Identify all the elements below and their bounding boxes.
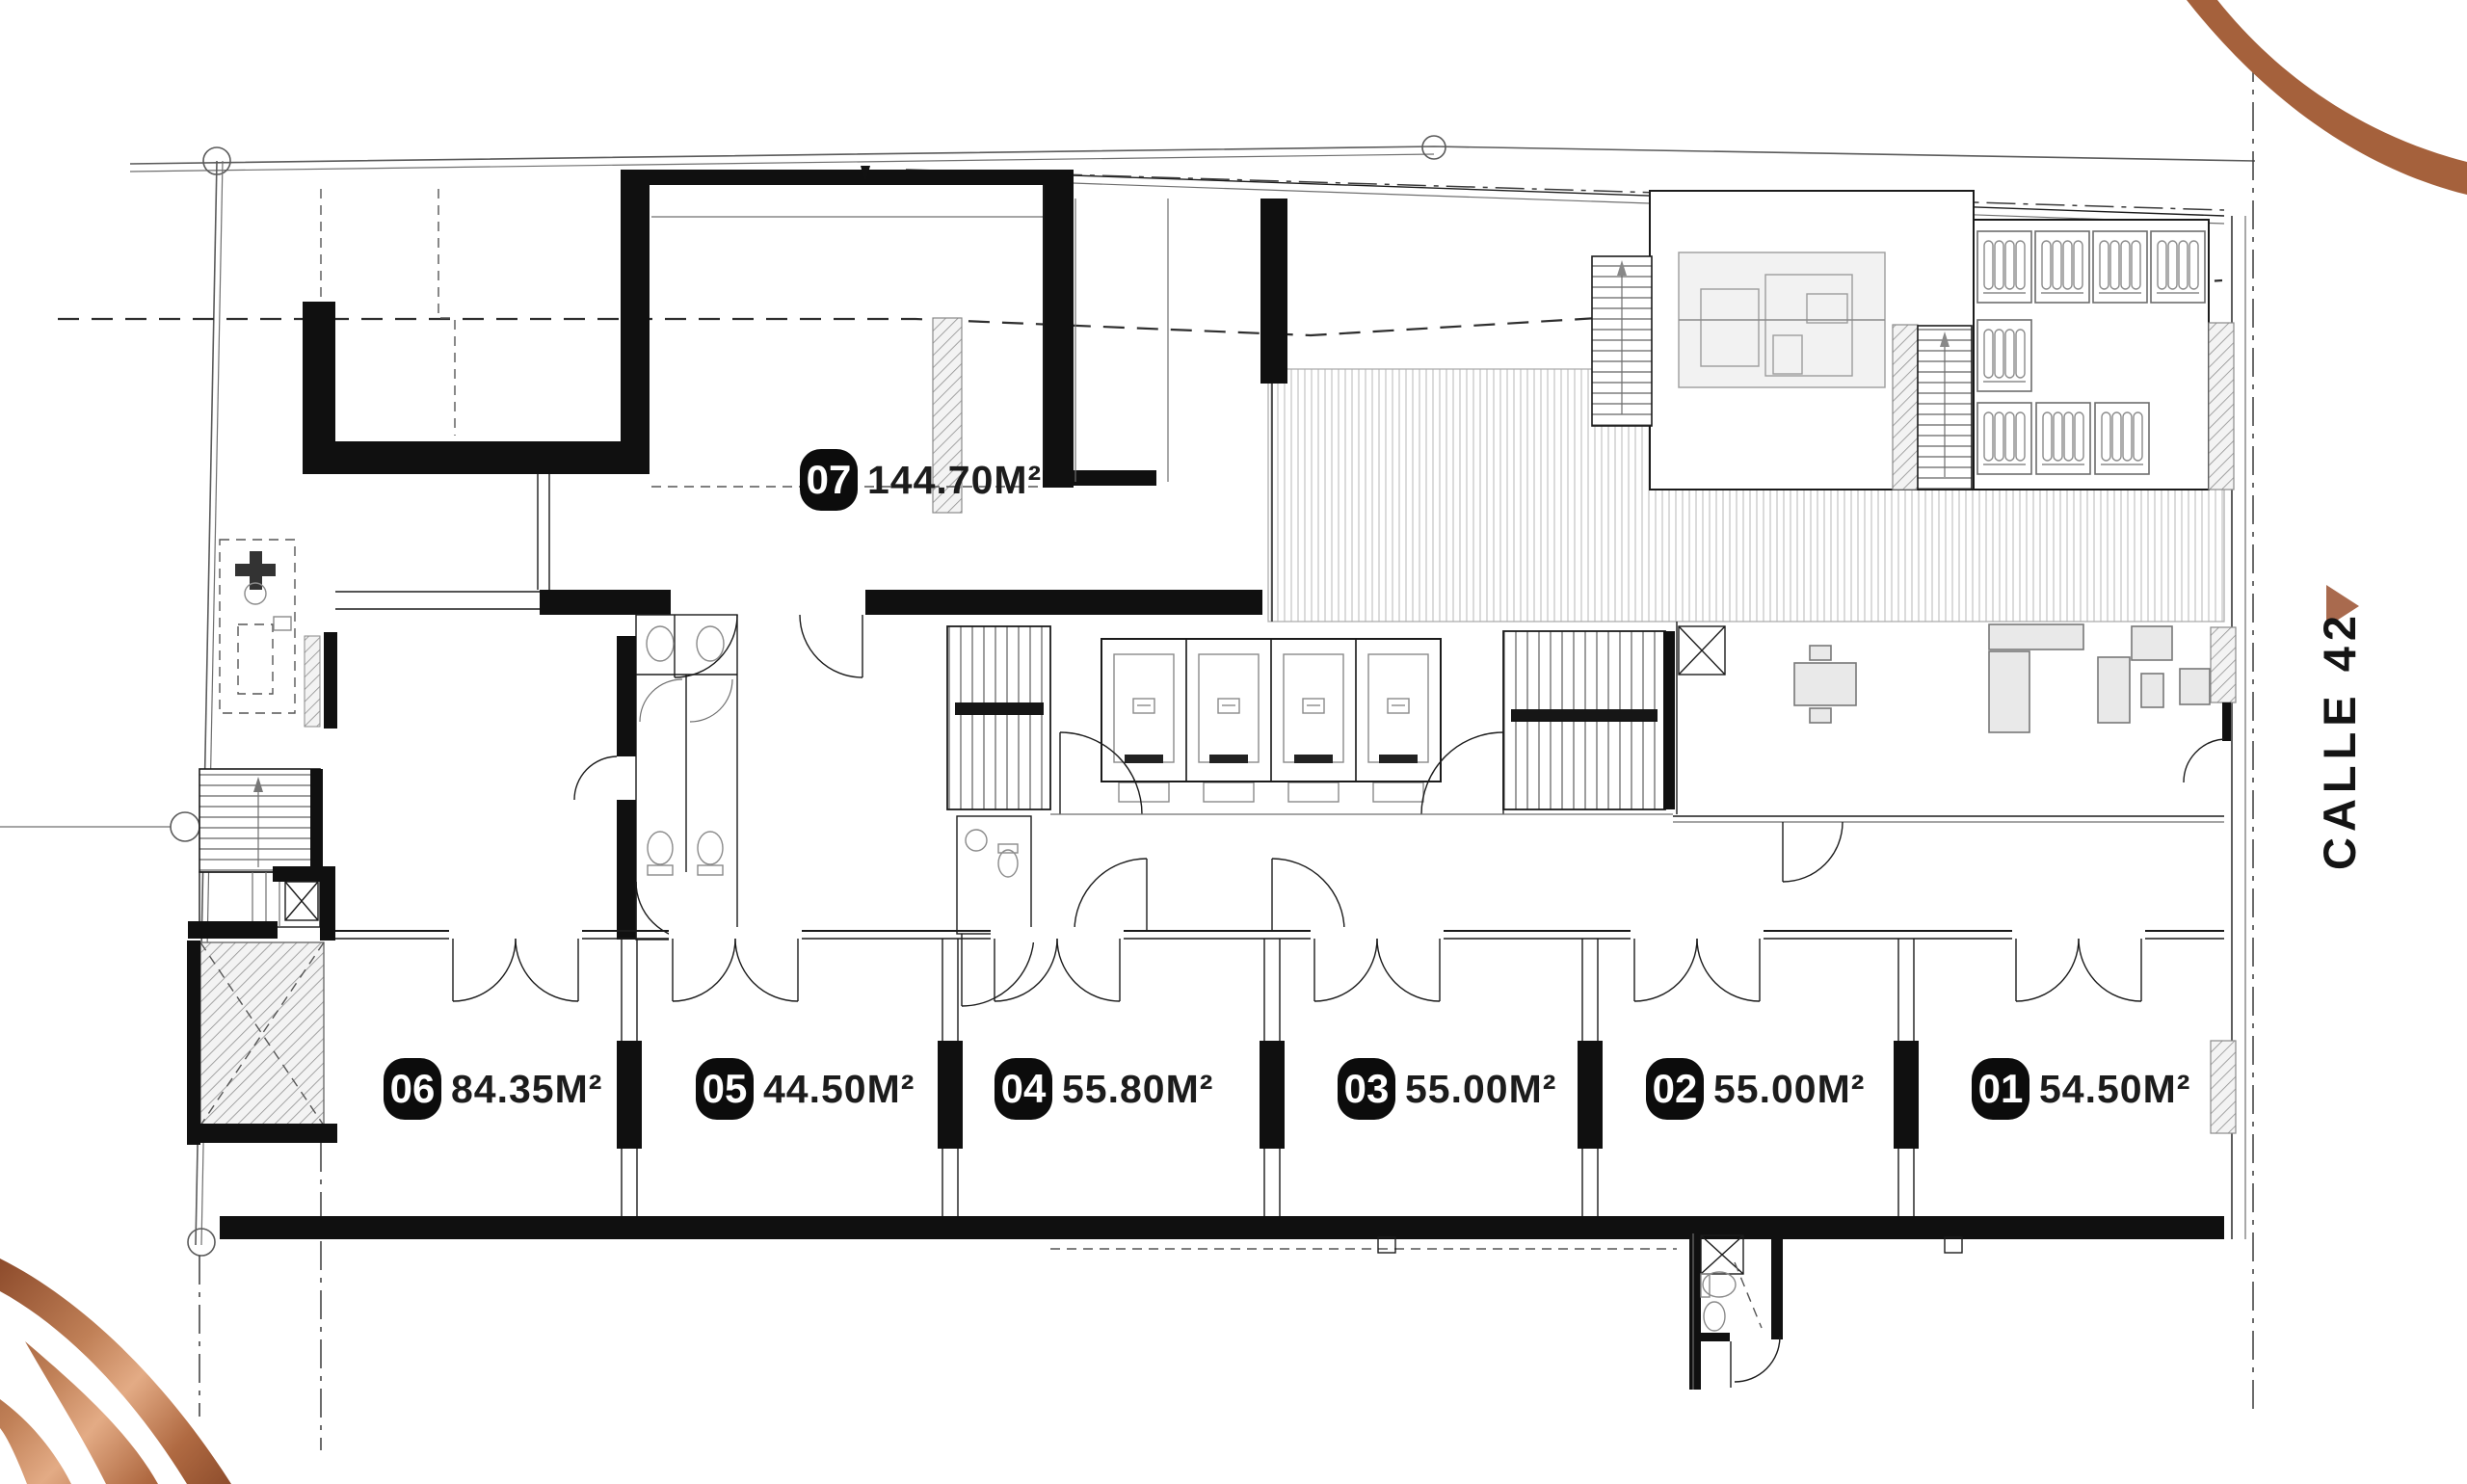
- stair-terrace-west: [1592, 256, 1652, 426]
- wc-small: [957, 816, 1034, 1006]
- service-area-west: [220, 189, 650, 729]
- stair-west-core: [947, 626, 1050, 809]
- unit-number-05: 05: [703, 1066, 748, 1111]
- stair-east-core: [1503, 631, 1675, 809]
- sink-icon: [966, 830, 987, 851]
- unit-number-02: 02: [1653, 1066, 1698, 1111]
- stair-west-exterior: [188, 769, 335, 941]
- toilet-icon: [998, 850, 1018, 877]
- bike-rack-icon: [1977, 403, 2031, 474]
- sink-icon: [1704, 1302, 1725, 1331]
- bike-rack-icon: [2093, 231, 2147, 303]
- corner-arc-top-right: [2187, 0, 2467, 195]
- grid-marker-icon: [1422, 136, 1446, 159]
- bike-rack-icon: [1977, 320, 2031, 391]
- unit-area-03: 55.00M²: [1405, 1067, 1556, 1111]
- elevator-icon: [1186, 639, 1271, 802]
- unit-number-07: 07: [807, 457, 852, 502]
- elevator-bank: [1101, 639, 1441, 802]
- unit-number-04: 04: [1001, 1066, 1047, 1111]
- unit-label-07: 07 144.70M²: [800, 449, 1042, 511]
- sink-icon: [647, 626, 674, 661]
- floor-plan-drawing: 07 144.70M² 06 84.35M² 05 44.50M² 04 55.…: [0, 0, 2467, 1484]
- toilet-icon: [648, 832, 673, 864]
- east-lobby: [1673, 622, 2236, 882]
- unit-area-01: 54.50M²: [2039, 1067, 2190, 1111]
- unit-area-05: 44.50M²: [763, 1067, 915, 1111]
- unit-area-06: 84.35M²: [451, 1067, 602, 1111]
- bike-racks: [1974, 220, 2209, 490]
- bike-rack-icon: [2095, 403, 2149, 474]
- bike-rack-icon: [2035, 231, 2089, 303]
- bike-rack-icon: [2151, 231, 2205, 303]
- toilet-icon: [1703, 1272, 1736, 1297]
- unit-area-07: 144.70M²: [867, 458, 1042, 502]
- bike-rack-icon: [1977, 231, 2031, 303]
- unit-07-room: [335, 166, 1262, 677]
- table-icon: [1794, 663, 1856, 705]
- unit-area-04: 55.80M²: [1062, 1067, 1213, 1111]
- grid-marker-icon: [171, 812, 199, 841]
- sink-icon: [697, 626, 724, 661]
- floor-plan-page: 07 144.70M² 06 84.35M² 05 44.50M² 04 55.…: [0, 0, 2467, 1484]
- wc-protrusion: [1689, 1233, 1783, 1390]
- unit-label-05: 05 44.50M²: [696, 1058, 915, 1120]
- unit-label-06: 06 84.35M²: [384, 1058, 602, 1120]
- bike-rack-icon: [2036, 403, 2090, 474]
- street-name: CALLE 42: [2314, 610, 2365, 870]
- unit-label-04: 04 55.80M²: [995, 1058, 1213, 1120]
- ramp-hatch: [187, 941, 337, 1145]
- elevator-icon: [1101, 639, 1186, 802]
- lounge-furniture: [1989, 624, 2210, 732]
- pump-equipment: [220, 540, 295, 713]
- unit-number-06: 06: [390, 1066, 436, 1111]
- unit-label-02: 02 55.00M²: [1646, 1058, 1865, 1120]
- restrooms: [574, 615, 737, 940]
- corner-arcs-bottom-left: [0, 1259, 231, 1484]
- unit-label-03: 03 55.00M²: [1338, 1058, 1556, 1120]
- stair-terrace-east: [1893, 325, 1972, 490]
- elevator-icon: [1356, 639, 1441, 802]
- toilet-icon: [698, 832, 723, 864]
- unit-area-02: 55.00M²: [1713, 1067, 1865, 1111]
- elevator-icon: [1271, 639, 1356, 802]
- unit-number-01: 01: [1978, 1066, 2024, 1111]
- street-label-calle-42: CALLE 42: [2314, 585, 2365, 870]
- unit-label-01: 01 54.50M²: [1972, 1058, 2190, 1120]
- unit-number-03: 03: [1344, 1066, 1390, 1111]
